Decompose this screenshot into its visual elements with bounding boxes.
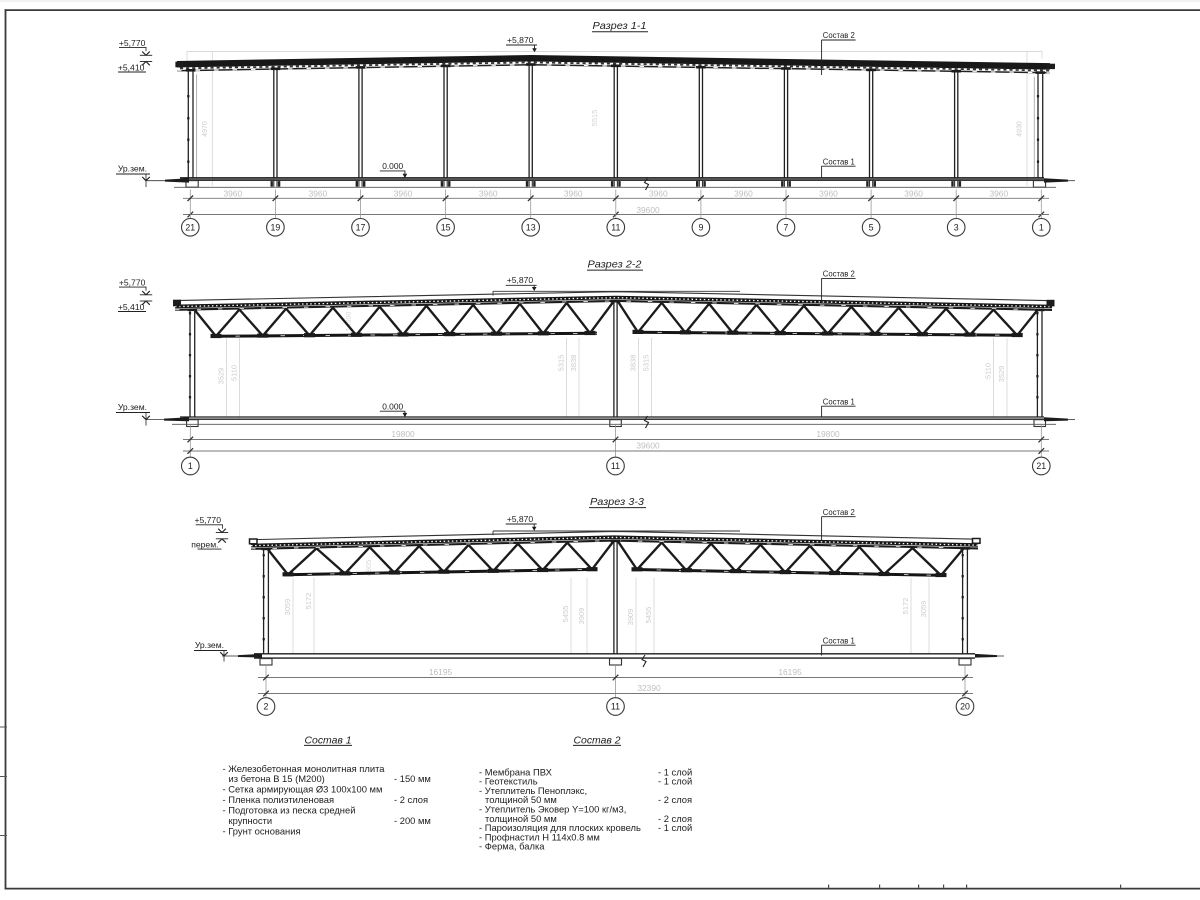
- svg-text:5: 5: [869, 222, 874, 232]
- svg-text:3: 3: [954, 222, 959, 232]
- svg-text:3529: 3529: [216, 368, 225, 385]
- svg-text:3909: 3909: [577, 608, 586, 625]
- svg-text:19: 19: [271, 222, 281, 232]
- svg-text:7: 7: [784, 222, 789, 232]
- svg-text:3838: 3838: [569, 355, 578, 372]
- svg-text:- 2 слоя: - 2 слоя: [394, 794, 428, 805]
- svg-text:Разрез 2-2: Разрез 2-2: [588, 258, 642, 270]
- svg-text:3960: 3960: [564, 189, 583, 199]
- svg-text:5455: 5455: [561, 606, 570, 623]
- svg-text:Разрез 3-3: Разрез 3-3: [590, 496, 644, 508]
- svg-text:+5,870: +5,870: [507, 514, 534, 524]
- svg-text:- Сетка армирующая Ø3 100х100: - Сетка армирующая Ø3 100х100 мм: [223, 784, 383, 795]
- svg-text:3838: 3838: [628, 355, 637, 372]
- svg-text:21: 21: [185, 222, 195, 232]
- svg-text:0.000: 0.000: [382, 401, 403, 411]
- svg-text:2: 2: [264, 702, 269, 712]
- svg-text:3960: 3960: [734, 189, 753, 199]
- svg-text:+5,410: +5,410: [118, 62, 145, 72]
- svg-text:+5,770: +5,770: [119, 38, 146, 48]
- svg-text:из бетона В 15 (М200): из бетона В 15 (М200): [229, 773, 325, 784]
- svg-text:1: 1: [1039, 222, 1044, 232]
- svg-text:Состав 2: Состав 2: [823, 30, 855, 40]
- svg-text:3960: 3960: [394, 189, 413, 199]
- svg-text:3960: 3960: [649, 189, 668, 199]
- svg-text:- Ферма, балка: - Ферма, балка: [479, 841, 545, 852]
- svg-text:Ур.зем.: Ур.зем.: [118, 164, 147, 174]
- svg-text:5515: 5515: [590, 110, 599, 127]
- svg-text:11: 11: [611, 461, 620, 471]
- svg-text:0.000: 0.000: [382, 161, 403, 171]
- svg-text:5172: 5172: [304, 593, 313, 610]
- svg-text:5172: 5172: [901, 598, 910, 615]
- svg-text:5110: 5110: [983, 363, 992, 379]
- svg-text:11: 11: [611, 702, 620, 712]
- svg-text:3059: 3059: [283, 599, 292, 616]
- svg-text:- 200 мм: - 200 мм: [394, 815, 431, 826]
- svg-text:17: 17: [356, 222, 366, 232]
- svg-text:Ур.зем.: Ур.зем.: [195, 640, 224, 650]
- svg-text:39600: 39600: [636, 205, 660, 215]
- svg-text:3960: 3960: [479, 189, 498, 199]
- svg-text:9: 9: [698, 222, 703, 232]
- svg-text:- Железобетонная монолитная п: - Железобетонная монолитная плита: [223, 763, 386, 774]
- svg-text:- Грунт основания: - Грунт основания: [223, 826, 301, 837]
- svg-text:Состав 2: Состав 2: [823, 269, 855, 279]
- svg-text:39600: 39600: [636, 441, 660, 451]
- svg-text:21: 21: [1036, 461, 1046, 471]
- svg-text:15: 15: [441, 222, 451, 232]
- svg-text:3529: 3529: [997, 366, 1006, 383]
- svg-text:32390: 32390: [637, 683, 661, 693]
- svg-text:5110: 5110: [229, 365, 238, 381]
- svg-text:3909: 3909: [626, 609, 635, 626]
- svg-text:3960: 3960: [989, 189, 1008, 199]
- svg-text:перем.: перем.: [191, 539, 218, 549]
- svg-text:- 150 мм: - 150 мм: [394, 773, 431, 784]
- svg-text:3960: 3960: [819, 189, 838, 199]
- svg-text:- 1 слой: - 1 слой: [658, 822, 692, 833]
- svg-text:Состав 1: Состав 1: [823, 156, 855, 166]
- svg-text:3960: 3960: [309, 189, 328, 199]
- svg-text:5455: 5455: [644, 607, 653, 624]
- svg-text:Состав 2: Состав 2: [823, 507, 855, 517]
- svg-text:11: 11: [611, 222, 620, 232]
- svg-text:4970: 4970: [202, 121, 209, 137]
- svg-text:20: 20: [960, 702, 970, 712]
- svg-text:Состав 1: Состав 1: [823, 396, 855, 406]
- svg-text:+5,410: +5,410: [118, 302, 145, 312]
- svg-text:- Подготовка из песка средней: - Подготовка из песка средней: [223, 805, 356, 816]
- svg-text:19800: 19800: [816, 429, 840, 439]
- svg-text:Разрез 1-1: Разрез 1-1: [593, 20, 647, 32]
- svg-text:Ур.зем.: Ур.зем.: [118, 402, 147, 412]
- svg-text:5315: 5315: [641, 355, 650, 372]
- svg-text:5315: 5315: [556, 355, 565, 372]
- svg-text:4930: 4930: [1017, 121, 1024, 137]
- svg-text:+5,870: +5,870: [507, 35, 534, 45]
- svg-text:3960: 3960: [223, 189, 242, 199]
- svg-text:- 2 слоя: - 2 слоя: [658, 794, 692, 805]
- svg-text:16195: 16195: [429, 667, 453, 677]
- svg-text:19800: 19800: [391, 429, 415, 439]
- svg-text:+5,770: +5,770: [194, 515, 221, 525]
- svg-text:+5,770: +5,770: [119, 278, 146, 288]
- svg-text:3960: 3960: [904, 189, 923, 199]
- svg-text:- Пленка полиэтиленовая: - Пленка полиэтиленовая: [223, 794, 335, 805]
- svg-text:Состав 1: Состав 1: [823, 635, 855, 645]
- svg-text:- 1 слой: - 1 слой: [658, 776, 692, 787]
- svg-text:крупности: крупности: [229, 815, 273, 826]
- svg-text:13: 13: [526, 222, 536, 232]
- svg-text:16195: 16195: [778, 667, 802, 677]
- svg-text:3059: 3059: [919, 601, 928, 618]
- svg-text:+5,870: +5,870: [507, 275, 534, 285]
- svg-text:1: 1: [188, 461, 193, 471]
